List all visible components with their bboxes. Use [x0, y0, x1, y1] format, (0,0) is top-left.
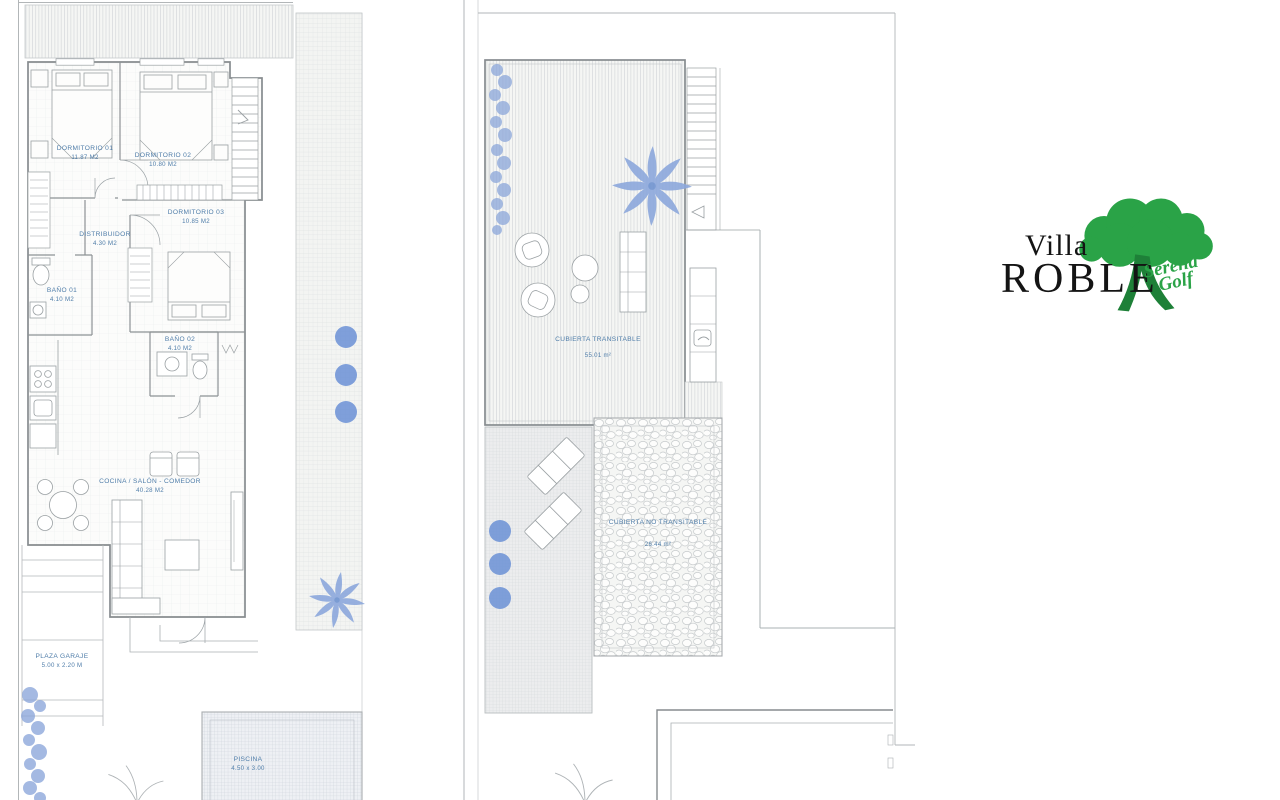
- bottom-right-room: [657, 710, 893, 800]
- room-label: PLAZA GARAJE: [36, 653, 89, 660]
- roof-counter: [690, 268, 716, 382]
- room-label: COCINA / SALÓN - COMEDOR: [99, 476, 201, 485]
- room-area: 4.30 M2: [93, 240, 117, 247]
- room-area: 55.01 m²: [585, 352, 611, 359]
- roof-edges: [760, 230, 895, 628]
- palm-partial-right: [555, 764, 613, 800]
- room-area: 4.10 M2: [50, 296, 74, 303]
- villa-roble-logo: Villa ROBLE Serena Golf: [995, 193, 1250, 358]
- room-area: 4.10 M2: [168, 345, 192, 352]
- porch-steps: [130, 617, 258, 652]
- gravel-roof: [594, 418, 722, 656]
- floor-plan-sheet: DORMITORIO 01 11.87 M2 DORMITORIO 02 10.…: [0, 0, 1280, 800]
- room-label: CUBIERTA NO TRANSITABLE: [609, 519, 708, 526]
- room-area: 40.28 M2: [136, 487, 164, 494]
- hedge-bottom-left: [21, 687, 47, 800]
- ground-floor-plan: DORMITORIO 01 11.87 M2 DORMITORIO 02 10.…: [19, 0, 372, 800]
- deck-bushes: [489, 520, 511, 609]
- sun-deck: [485, 427, 592, 713]
- palm-partial-left: [108, 766, 163, 800]
- bed-dormitorio-03: [168, 252, 230, 320]
- room-area: 10.85 M2: [182, 218, 210, 225]
- room-label: DORMITORIO 01: [57, 145, 113, 152]
- pool: [202, 712, 362, 800]
- window-marks: [56, 59, 224, 65]
- plans-drawing: DORMITORIO 01 11.87 M2 DORMITORIO 02 10.…: [0, 0, 1280, 800]
- room-label: BAÑO 01: [47, 285, 77, 294]
- room-label: BAÑO 02: [165, 334, 195, 343]
- room-label: DISTRIBUIDOR: [79, 231, 130, 238]
- room-area: 5.00 x 2.20 M: [42, 662, 83, 669]
- room-area: 26.44 m²: [645, 541, 671, 548]
- garden-bushes: [335, 326, 357, 423]
- room-area: 11.87 M2: [71, 154, 99, 161]
- room-label: DORMITORIO 03: [168, 209, 224, 216]
- logo-roble-text: ROBLE: [1001, 255, 1159, 303]
- stairs-roof: [685, 68, 760, 230]
- front-terrace-hatch: [25, 5, 293, 58]
- room-label: CUBIERTA TRANSITABLE: [555, 336, 641, 343]
- room-label: DORMITORIO 02: [135, 152, 191, 159]
- room-area: 10.80 M2: [149, 161, 177, 168]
- stairs-ground: [232, 78, 258, 200]
- room-area: 4.50 x 3.00: [231, 765, 265, 772]
- roof-plan: CUBIERTA TRANSITABLE 55.01 m² CUBIERTA N…: [464, 0, 915, 800]
- side-garden-band: [296, 13, 362, 630]
- room-label: PISCINA: [234, 756, 263, 763]
